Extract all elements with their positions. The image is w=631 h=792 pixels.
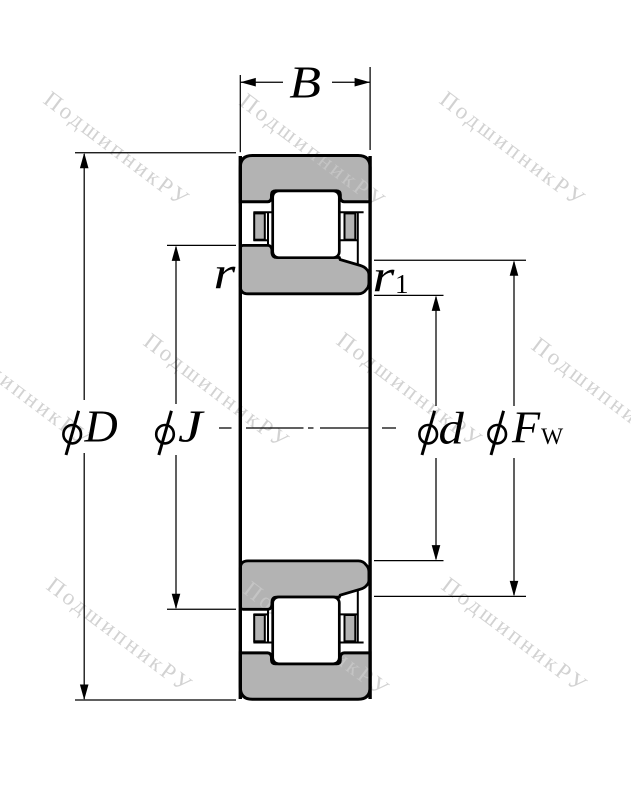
svg-text:J: J	[178, 401, 205, 452]
svg-text:r: r	[214, 248, 237, 299]
svg-text:B: B	[289, 56, 321, 108]
svg-text:d: d	[439, 404, 465, 454]
svg-text:D: D	[84, 401, 118, 452]
svg-text:F: F	[511, 402, 541, 453]
svg-text:W: W	[541, 424, 564, 450]
svg-text:1: 1	[395, 269, 409, 299]
svg-text:r: r	[373, 251, 396, 302]
